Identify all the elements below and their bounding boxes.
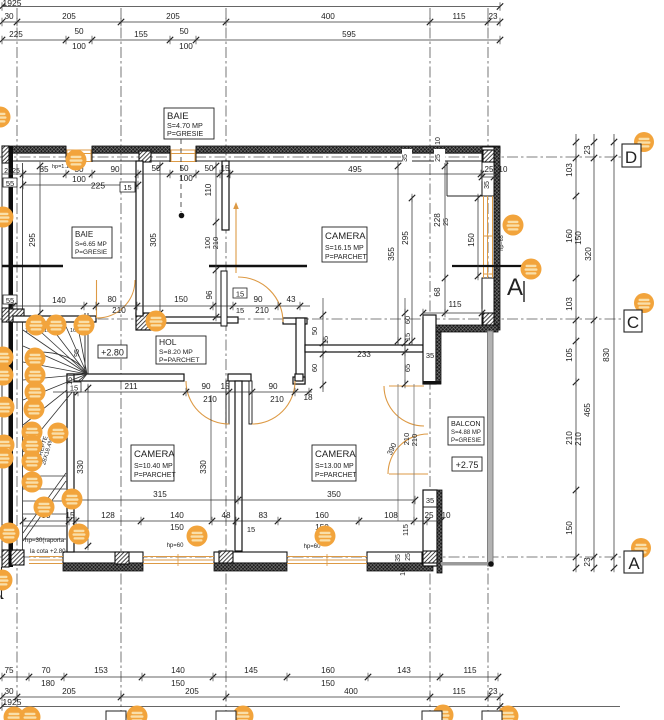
svg-text:225: 225	[91, 181, 105, 191]
svg-text:210: 210	[112, 306, 126, 315]
svg-text:90: 90	[110, 165, 120, 174]
svg-text:55: 55	[6, 179, 14, 188]
svg-text:25: 25	[4, 168, 12, 175]
svg-text:35: 35	[484, 181, 491, 189]
svg-text:205: 205	[166, 12, 180, 21]
svg-text:205: 205	[185, 687, 199, 696]
svg-text:P=PARCHET: P=PARCHET	[134, 472, 176, 479]
svg-text:595: 595	[342, 30, 356, 39]
svg-text:15: 15	[65, 511, 75, 520]
svg-text:210: 210	[255, 306, 269, 315]
svg-text:23: 23	[583, 557, 592, 567]
svg-text:10: 10	[441, 511, 451, 520]
svg-text:P=PARCHET: P=PARCHET	[325, 254, 367, 261]
svg-text:108: 108	[384, 511, 398, 520]
svg-text:15: 15	[236, 306, 244, 315]
svg-text:50: 50	[179, 164, 189, 173]
svg-text:96: 96	[205, 290, 214, 299]
svg-text:S=10.40 MP: S=10.40 MP	[134, 463, 173, 470]
svg-text:103: 103	[565, 163, 574, 177]
svg-text:35: 35	[402, 154, 409, 162]
svg-text:80: 80	[107, 295, 117, 304]
svg-text:830: 830	[602, 348, 611, 362]
svg-text:15: 15	[236, 290, 244, 299]
svg-text:100: 100	[179, 174, 193, 183]
svg-text:115: 115	[452, 687, 465, 696]
svg-text:60: 60	[403, 316, 412, 324]
svg-text:330: 330	[76, 460, 85, 474]
svg-text:D: D	[625, 148, 637, 167]
svg-text:25: 25	[485, 165, 494, 174]
svg-text:48: 48	[221, 511, 231, 520]
svg-text:90: 90	[201, 382, 211, 391]
svg-text:23: 23	[488, 12, 498, 21]
svg-text:150: 150	[574, 231, 583, 245]
svg-text:C: C	[627, 313, 639, 332]
svg-text:85: 85	[39, 165, 49, 174]
svg-text:295: 295	[28, 233, 37, 247]
svg-text:50: 50	[74, 27, 84, 36]
svg-text:35: 35	[426, 351, 434, 360]
svg-text:15: 15	[220, 382, 230, 391]
svg-text:30: 30	[4, 12, 14, 21]
svg-text:140: 140	[171, 666, 185, 675]
svg-text:400: 400	[344, 687, 358, 696]
svg-text:25: 25	[424, 511, 434, 520]
svg-text:160: 160	[321, 666, 335, 675]
svg-text:23: 23	[488, 687, 498, 696]
svg-text:228: 228	[433, 213, 442, 227]
svg-text:P=PARCHET: P=PARCHET	[159, 357, 199, 364]
svg-text:BAIE: BAIE	[75, 230, 93, 239]
svg-text:350: 350	[327, 490, 341, 499]
svg-text:315: 315	[153, 490, 167, 499]
svg-text:1925: 1925	[3, 0, 22, 8]
svg-text:hp=30(raporta: hp=30(raporta	[25, 537, 65, 544]
svg-text:50: 50	[204, 164, 214, 173]
svg-text:35: 35	[395, 554, 402, 562]
svg-text:S=4.88 MP: S=4.88 MP	[451, 430, 481, 436]
svg-text:150: 150	[321, 679, 335, 688]
svg-text:143: 143	[397, 666, 411, 675]
svg-text:hp=60: hp=60	[304, 544, 322, 550]
svg-text:145: 145	[244, 666, 258, 675]
svg-text:15: 15	[247, 525, 255, 534]
svg-text:P=PARCHET: P=PARCHET	[315, 472, 357, 479]
svg-text:CAMERA: CAMERA	[315, 449, 356, 460]
svg-text:115: 115	[401, 524, 410, 536]
svg-text:P=GRESIE: P=GRESIE	[75, 249, 107, 256]
svg-text:100: 100	[72, 42, 86, 51]
svg-text:150: 150	[174, 295, 188, 304]
svg-text:355: 355	[387, 247, 396, 261]
svg-text:25: 25	[435, 154, 442, 162]
svg-text:+2.75: +2.75	[456, 460, 479, 470]
svg-text:210: 210	[270, 395, 284, 404]
svg-text:210: 210	[410, 434, 419, 447]
svg-text:S=8.20 MP: S=8.20 MP	[159, 349, 193, 356]
svg-text:P=GRESIE: P=GRESIE	[167, 129, 203, 138]
svg-text:75: 75	[4, 666, 14, 675]
svg-text:10: 10	[400, 568, 407, 576]
svg-text:90: 90	[253, 295, 263, 304]
svg-text:140: 140	[170, 511, 184, 520]
svg-text:211: 211	[124, 382, 137, 391]
svg-text:+2.80: +2.80	[101, 348, 124, 358]
svg-text:105: 105	[565, 348, 574, 362]
svg-text:18: 18	[303, 393, 313, 402]
svg-text:BALCON: BALCON	[451, 419, 481, 428]
svg-text:50: 50	[310, 327, 319, 335]
svg-text:210: 210	[565, 431, 574, 445]
svg-text:103: 103	[565, 297, 574, 311]
svg-text:15: 15	[220, 164, 230, 173]
svg-text:60: 60	[310, 364, 319, 372]
svg-text:225: 225	[9, 30, 23, 39]
svg-text:la cota +2.80: la cota +2.80	[30, 548, 66, 555]
svg-text:hp=65: hp=65	[499, 235, 505, 250]
svg-text:153: 153	[94, 666, 108, 675]
svg-text:70: 70	[41, 666, 51, 675]
svg-text:205: 205	[62, 12, 76, 21]
svg-text:233: 233	[357, 350, 371, 359]
svg-text:115: 115	[463, 666, 476, 675]
svg-text:160: 160	[315, 511, 329, 520]
svg-text:140: 140	[52, 296, 66, 305]
svg-text:25: 25	[405, 553, 412, 561]
svg-text:83: 83	[258, 511, 268, 520]
svg-text:15: 15	[123, 183, 131, 192]
svg-text:400: 400	[321, 12, 335, 21]
svg-text:115: 115	[448, 300, 461, 309]
svg-text:A: A	[507, 274, 523, 301]
svg-text:68: 68	[433, 287, 442, 297]
svg-text:10: 10	[499, 165, 508, 174]
svg-text:210: 210	[574, 432, 583, 446]
svg-text:150: 150	[170, 523, 184, 532]
svg-text:205: 205	[62, 687, 76, 696]
svg-text:P=GRESIE: P=GRESIE	[451, 438, 481, 444]
svg-text:320: 320	[584, 247, 593, 261]
svg-text:1925: 1925	[3, 697, 22, 707]
svg-text:150: 150	[565, 521, 574, 535]
svg-text:150: 150	[467, 233, 476, 247]
svg-text:115: 115	[452, 12, 465, 21]
svg-text:50: 50	[179, 27, 189, 36]
svg-text:210: 210	[211, 237, 220, 250]
svg-text:35: 35	[426, 496, 434, 505]
svg-text:65: 65	[403, 364, 412, 372]
svg-text:465: 465	[583, 403, 592, 417]
svg-text:CAMERA: CAMERA	[325, 231, 366, 242]
svg-text:90: 90	[268, 382, 278, 391]
svg-text:110: 110	[204, 183, 213, 196]
svg-text:S=16.15 MP: S=16.15 MP	[325, 245, 364, 252]
svg-text:305: 305	[149, 233, 158, 247]
svg-text:43: 43	[286, 295, 296, 304]
svg-text:15: 15	[67, 377, 74, 385]
svg-text:295: 295	[401, 231, 410, 245]
svg-text:23: 23	[583, 145, 592, 155]
svg-text:S=13.00 MP: S=13.00 MP	[315, 463, 354, 470]
svg-text:160: 160	[565, 229, 574, 243]
svg-text:10: 10	[435, 137, 442, 145]
svg-text:25: 25	[443, 218, 450, 226]
svg-text:100: 100	[179, 42, 193, 51]
svg-text:210: 210	[203, 395, 217, 404]
svg-text:495: 495	[348, 165, 362, 174]
svg-text:128: 128	[101, 511, 115, 520]
svg-text:25: 25	[12, 168, 20, 175]
svg-text:150: 150	[171, 679, 185, 688]
svg-text:155: 155	[134, 30, 148, 39]
svg-text:180: 180	[41, 679, 55, 688]
svg-text:A: A	[628, 554, 640, 573]
svg-text:95: 95	[74, 349, 81, 357]
svg-text:15: 15	[321, 336, 330, 344]
svg-text:30: 30	[4, 687, 14, 696]
svg-text:hp=60: hp=60	[167, 543, 185, 549]
svg-text:50: 50	[151, 164, 161, 173]
svg-text:CAMERA: CAMERA	[134, 449, 175, 460]
svg-text:S=6.65 MP: S=6.65 MP	[75, 241, 107, 248]
svg-text:HOL: HOL	[159, 337, 177, 347]
svg-text:100: 100	[72, 175, 86, 184]
svg-text:330: 330	[199, 460, 208, 474]
